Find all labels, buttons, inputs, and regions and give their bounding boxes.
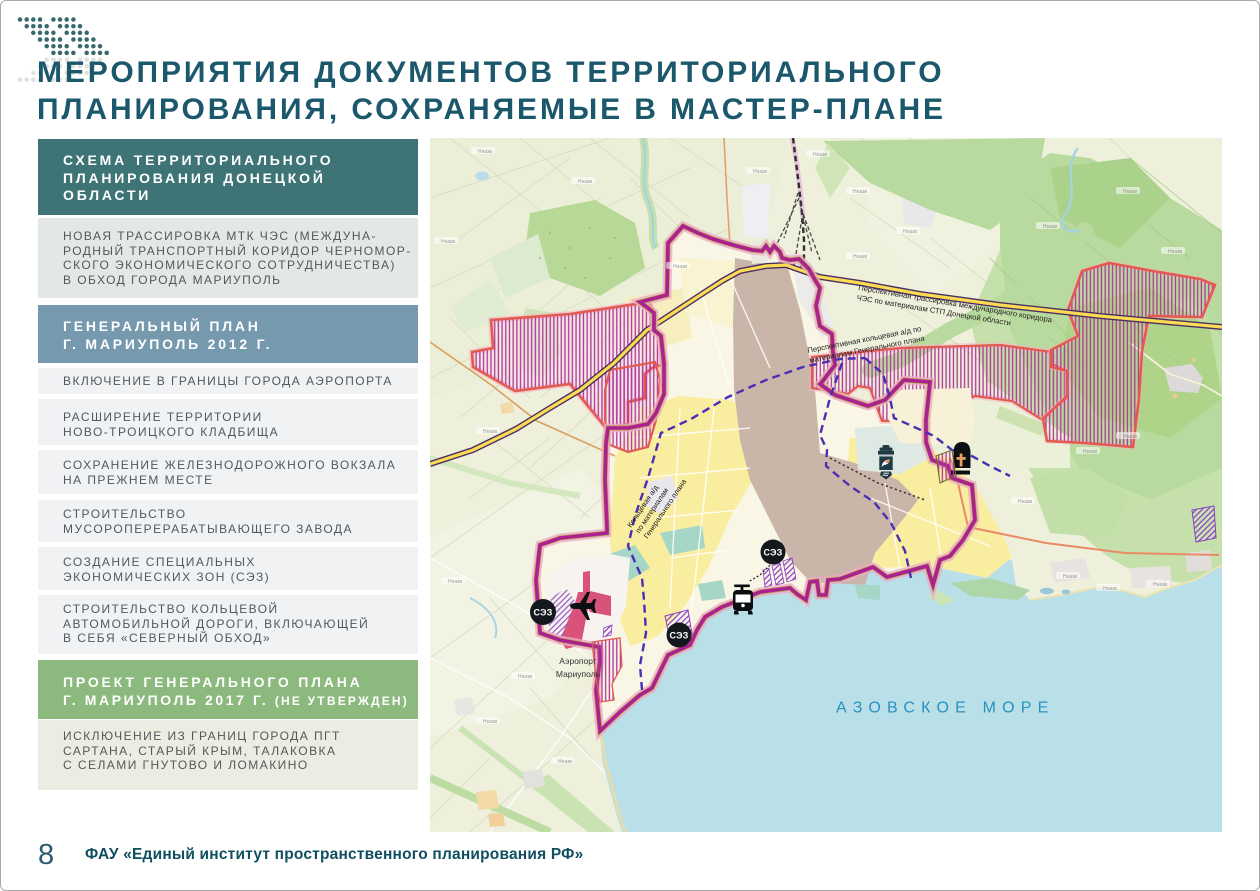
svg-text:Нназв: Нназв	[483, 719, 497, 725]
svg-text:СЭЗ: СЭЗ	[670, 631, 689, 641]
svg-text:Нназв: Нназв	[1083, 449, 1097, 455]
svg-text:Нназв: Нназв	[478, 149, 492, 155]
svg-text:Нназв: Нназв	[853, 254, 867, 260]
svg-text:Аэропорт: Аэропорт	[559, 656, 597, 666]
svg-text:Нназв: Нназв	[673, 264, 687, 270]
svg-text:СЭЗ: СЭЗ	[764, 548, 783, 558]
svg-text:Нназв: Нназв	[813, 152, 827, 158]
svg-text:Нназв: Нназв	[441, 239, 455, 245]
svg-text:Нназв: Нназв	[1153, 582, 1167, 588]
svg-text:Нназв: Нназв	[753, 169, 767, 175]
svg-text:Нназв: Нназв	[558, 759, 572, 765]
svg-text:Нназв: Нназв	[1043, 224, 1057, 230]
svg-text:Нназв: Нназв	[518, 674, 532, 680]
svg-text:Нназв: Нназв	[578, 179, 592, 185]
svg-text:АЗОВСКОЕ МОРЕ: АЗОВСКОЕ МОРЕ	[836, 700, 1055, 717]
svg-text:Мариуполь: Мариуполь	[556, 669, 601, 679]
svg-text:Нназв: Нназв	[1123, 434, 1137, 440]
svg-text:Нназв: Нназв	[1063, 574, 1077, 580]
svg-text:Нназв: Нназв	[1018, 499, 1032, 505]
svg-text:СЭЗ: СЭЗ	[534, 608, 553, 618]
svg-text:Нназв: Нназв	[483, 429, 497, 435]
svg-text:Нназв: Нназв	[1103, 586, 1117, 592]
svg-text:Нназв: Нназв	[448, 579, 462, 585]
svg-text:Нназв: Нназв	[853, 189, 867, 195]
svg-text:Нназв: Нназв	[1168, 249, 1182, 255]
svg-text:Нназв: Нназв	[1123, 189, 1137, 195]
svg-text:Нназв: Нназв	[903, 229, 917, 235]
